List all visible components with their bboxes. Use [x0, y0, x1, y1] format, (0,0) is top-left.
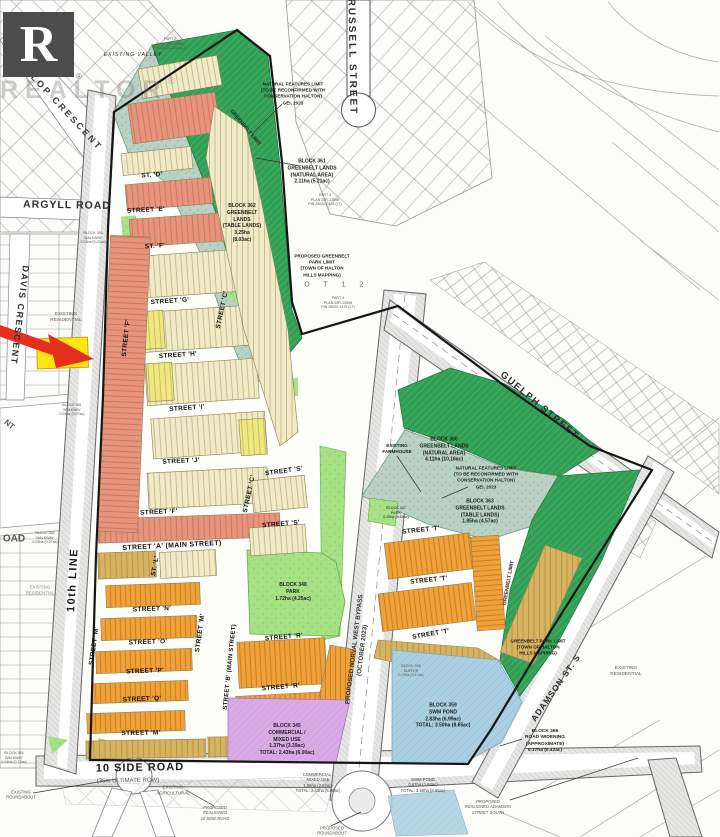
block-348-park	[247, 550, 345, 636]
russell-culdesac	[342, 93, 376, 127]
russell-street-road	[347, 0, 370, 96]
realtor-logo: R	[3, 12, 74, 77]
registered-mark: ®	[76, 72, 82, 81]
site-plan-screenshot: REALTOR® R ® GOLLOP CRESCENT RUSSELL STR…	[0, 0, 720, 837]
site-plan-map	[0, 0, 720, 837]
swm-pond-south	[388, 790, 468, 836]
block-347-park	[368, 498, 398, 526]
block-345-commercial	[228, 698, 350, 762]
realtor-watermark: REALTOR®	[0, 76, 175, 105]
realtor-logo-letter: R	[20, 19, 58, 71]
